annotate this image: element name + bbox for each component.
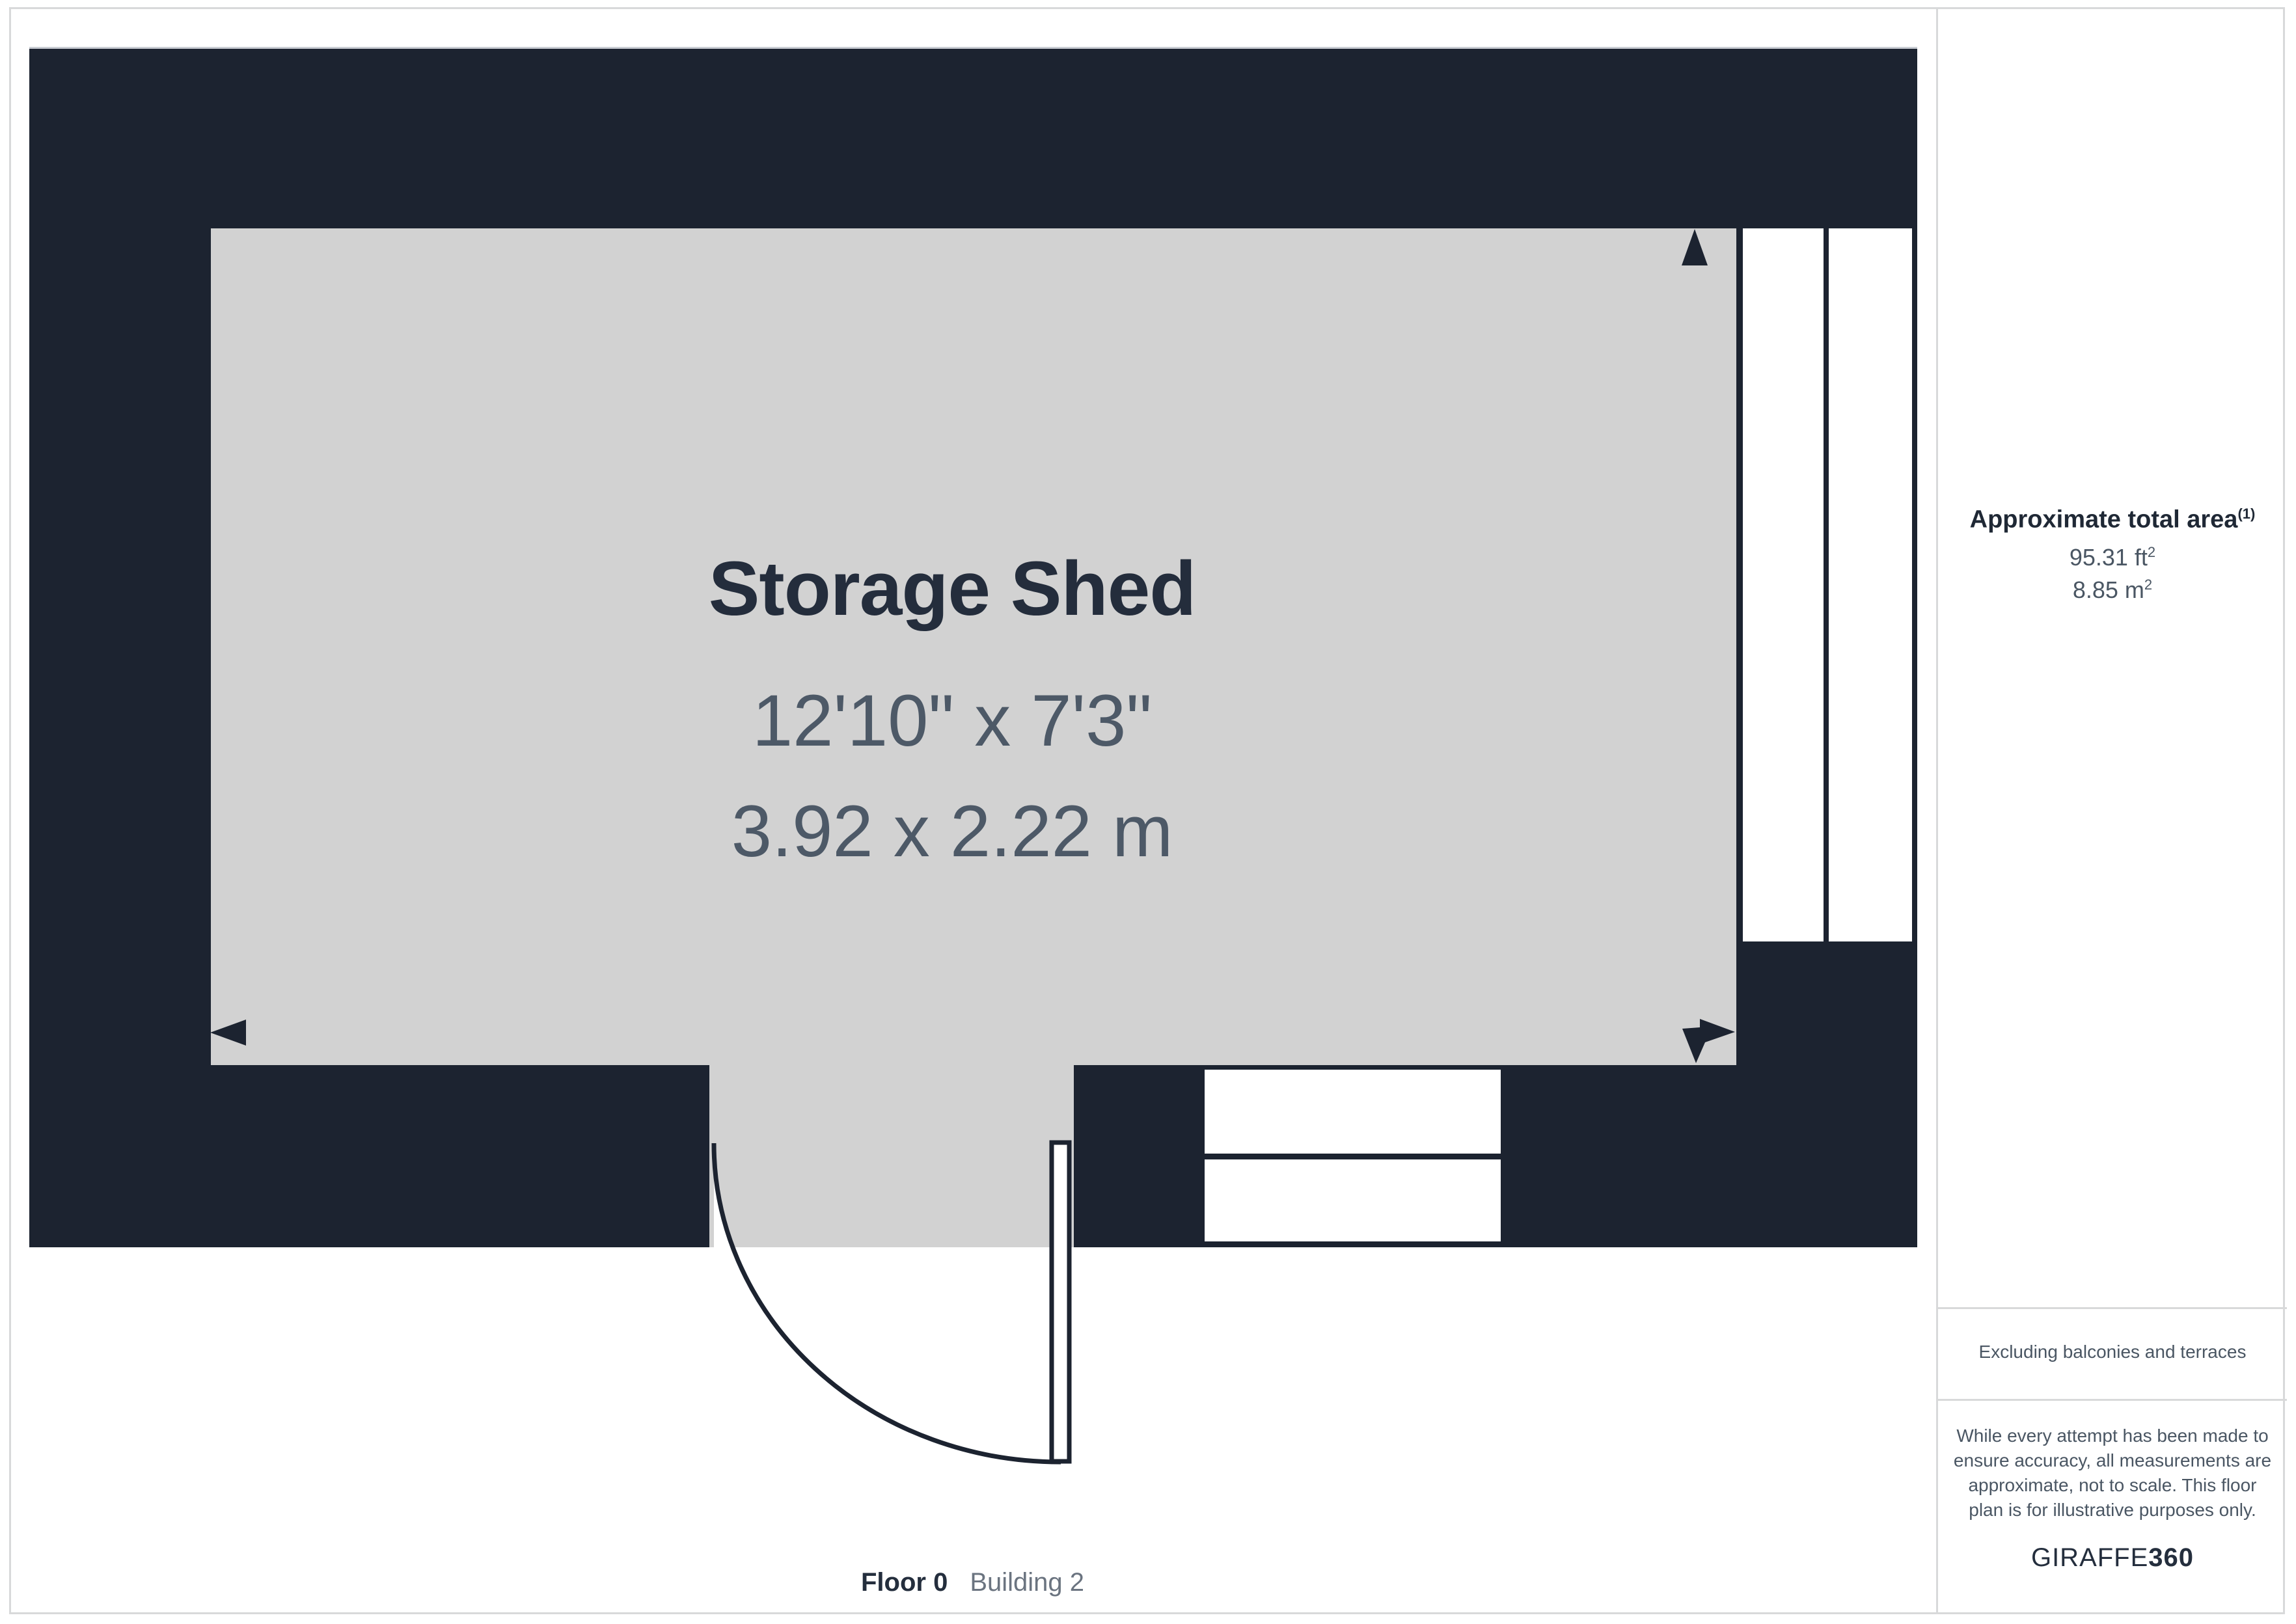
disclaimer-line: ensure accuracy, all measurements are: [1938, 1448, 2287, 1473]
disclaimer-line: While every attempt has been made to: [1938, 1424, 2287, 1448]
disclaimer-line: approximate, not to scale. This floor: [1938, 1473, 2287, 1498]
area-footnote-marker: (1): [2237, 506, 2255, 522]
area-imperial: 95.31 ft2: [1938, 545, 2287, 569]
sidebar-divider-top: [1938, 1307, 2287, 1309]
area-metric-sup: 2: [2144, 576, 2152, 593]
stair-step-1: [1205, 1070, 1501, 1154]
room-size-imperial: 12'10" x 7'3": [431, 684, 1473, 757]
sidebar-divider-bottom: [1938, 1399, 2287, 1401]
area-metric-value: 8.85 m: [2073, 576, 2144, 603]
disclaimer-line: plan is for illustrative purposes only.: [1938, 1498, 2287, 1522]
floor-label: Floor 0: [861, 1568, 948, 1597]
stair-step-2: [1205, 1159, 1501, 1241]
floorplan-footer: Floor 0Building 2: [9, 1569, 1936, 1595]
area-metric: 8.85 m2: [1938, 578, 2287, 602]
brand-name: GIRAFFE: [2031, 1543, 2148, 1572]
room-size-metric: 3.92 x 2.22 m: [431, 795, 1473, 868]
room-floor: [211, 228, 1736, 1065]
room-name: Storage Shed: [431, 550, 1473, 627]
exclusion-note: Excluding balconies and terraces: [1938, 1342, 2287, 1362]
area-imperial-value: 95.31 ft: [2070, 544, 2148, 571]
window-pane-left: [1743, 228, 1824, 941]
brand-suffix: 360: [2148, 1543, 2194, 1572]
window-pane-right: [1829, 228, 1912, 941]
sidebar-left-border: [1936, 7, 1938, 1614]
door-opening: [709, 1065, 1074, 1247]
building-label: Building 2: [970, 1568, 1084, 1597]
disclaimer: While every attempt has been made to ens…: [1938, 1424, 2287, 1522]
area-title-text: Approximate total area: [1970, 506, 2238, 534]
area-imperial-sup: 2: [2148, 544, 2155, 560]
area-title: Approximate total area(1): [1938, 506, 2287, 534]
brand-logo: GIRAFFE360: [1938, 1543, 2287, 1573]
